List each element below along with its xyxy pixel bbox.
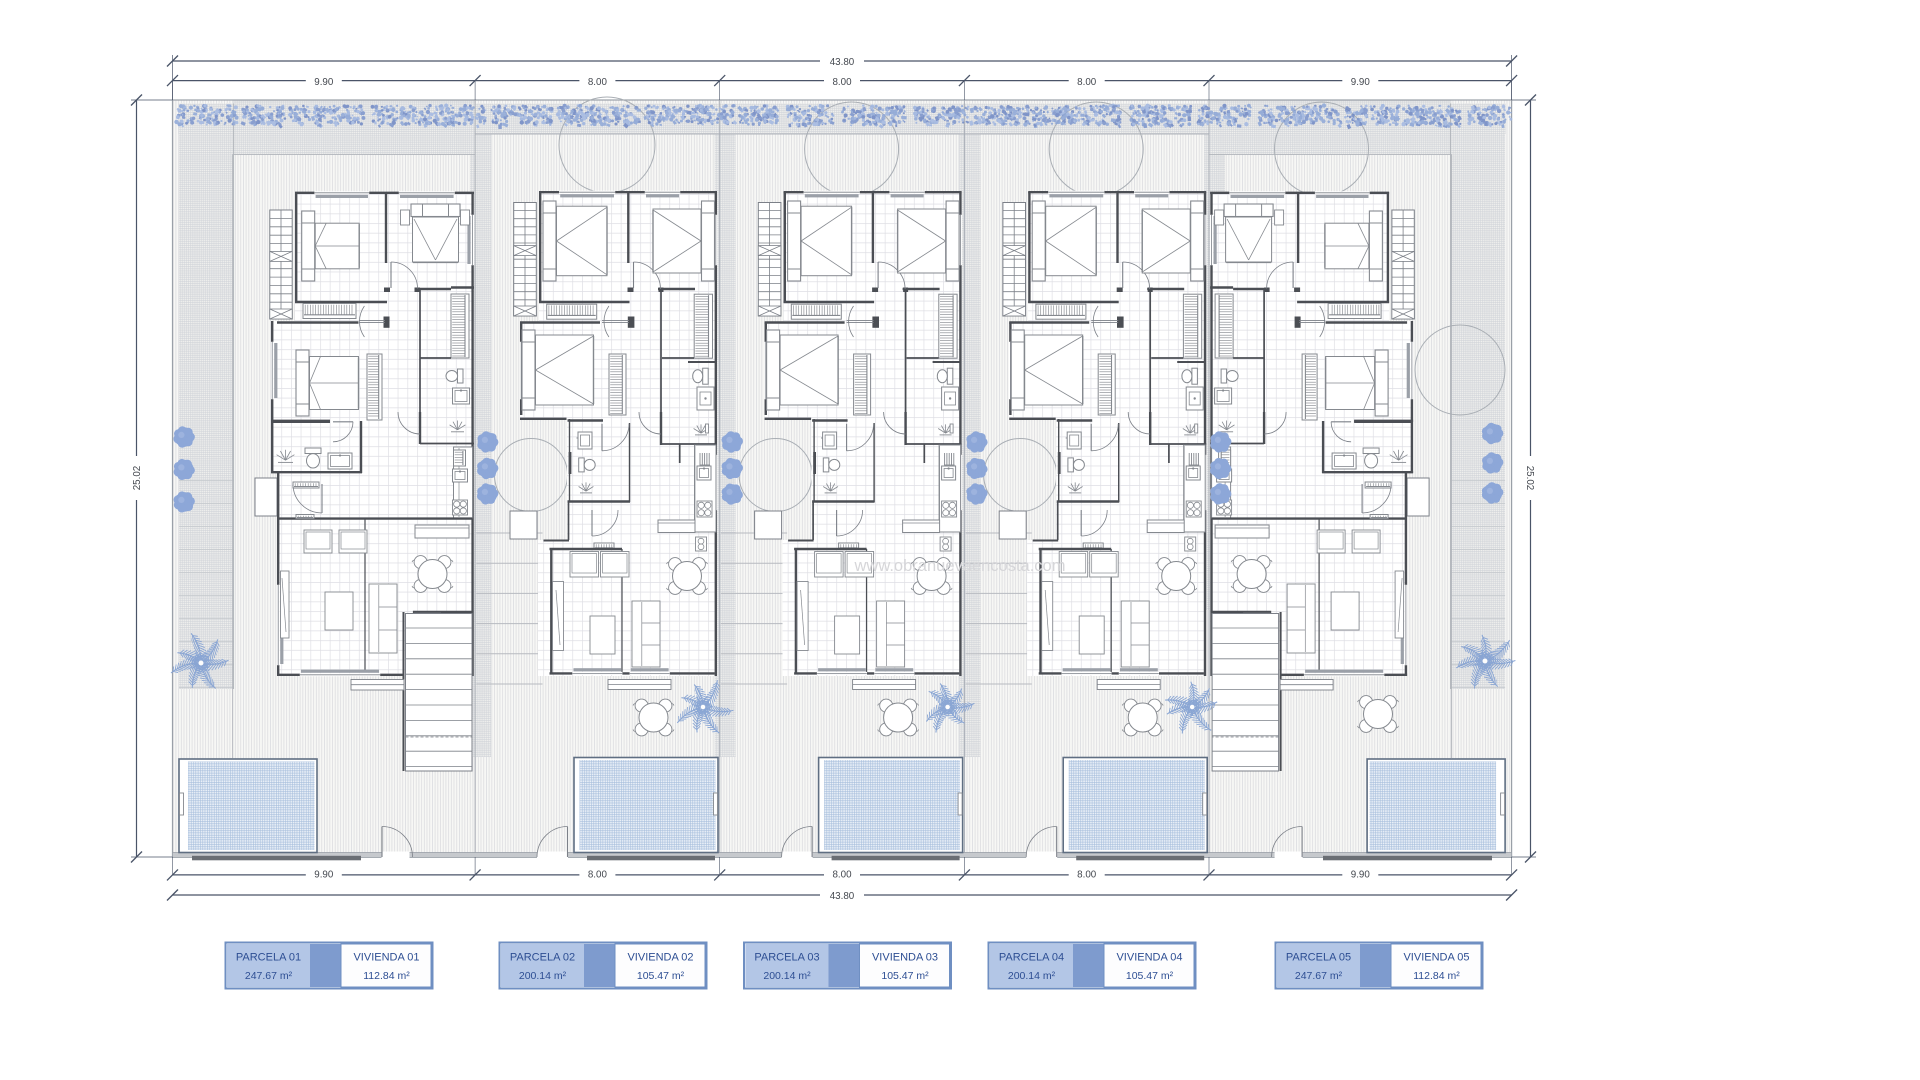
svg-text:9.90: 9.90 [314,77,334,88]
svg-text:25.02: 25.02 [132,466,143,491]
svg-text:PARCELA 03: PARCELA 03 [754,952,819,964]
svg-text:8.00: 8.00 [1077,870,1097,881]
svg-text:247.67 m²: 247.67 m² [1295,970,1343,982]
svg-text:43.80: 43.80 [830,891,855,902]
svg-text:8.00: 8.00 [1077,77,1097,88]
svg-text:8.00: 8.00 [832,77,852,88]
svg-text:112.84 m²: 112.84 m² [1413,970,1460,982]
svg-text:105.47 m²: 105.47 m² [881,970,929,982]
svg-text:25.02: 25.02 [1524,466,1535,491]
svg-text:43.80: 43.80 [830,57,855,68]
svg-text:9.90: 9.90 [1351,77,1371,88]
svg-text:200.14 m²: 200.14 m² [519,970,567,982]
svg-text:VIVIENDA 02: VIVIENDA 02 [627,952,693,964]
svg-text:105.47 m²: 105.47 m² [1126,970,1174,982]
svg-text:VIVIENDA 01: VIVIENDA 01 [353,952,419,964]
svg-text:8.00: 8.00 [588,870,608,881]
svg-text:PARCELA 01: PARCELA 01 [236,952,301,964]
svg-text:PARCELA 04: PARCELA 04 [999,952,1064,964]
svg-text:PARCELA 02: PARCELA 02 [510,952,575,964]
svg-text:VIVIENDA 04: VIVIENDA 04 [1116,952,1182,964]
svg-text:8.00: 8.00 [832,870,852,881]
svg-text:200.14 m²: 200.14 m² [763,970,811,982]
svg-text:9.90: 9.90 [1351,870,1371,881]
svg-text:105.47 m²: 105.47 m² [637,970,685,982]
svg-text:112.84 m²: 112.84 m² [363,970,410,982]
svg-text:8.00: 8.00 [588,77,608,88]
svg-text:247.67 m²: 247.67 m² [245,970,293,982]
svg-text:9.90: 9.90 [314,870,334,881]
svg-text:200.14 m²: 200.14 m² [1008,970,1056,982]
svg-text:VIVIENDA 05: VIVIENDA 05 [1403,952,1469,964]
svg-text:VIVIENDA 03: VIVIENDA 03 [872,952,938,964]
svg-text:PARCELA 05: PARCELA 05 [1286,952,1351,964]
svg-text:www.obranuevaencosta.com: www.obranuevaencosta.com [854,557,1066,575]
